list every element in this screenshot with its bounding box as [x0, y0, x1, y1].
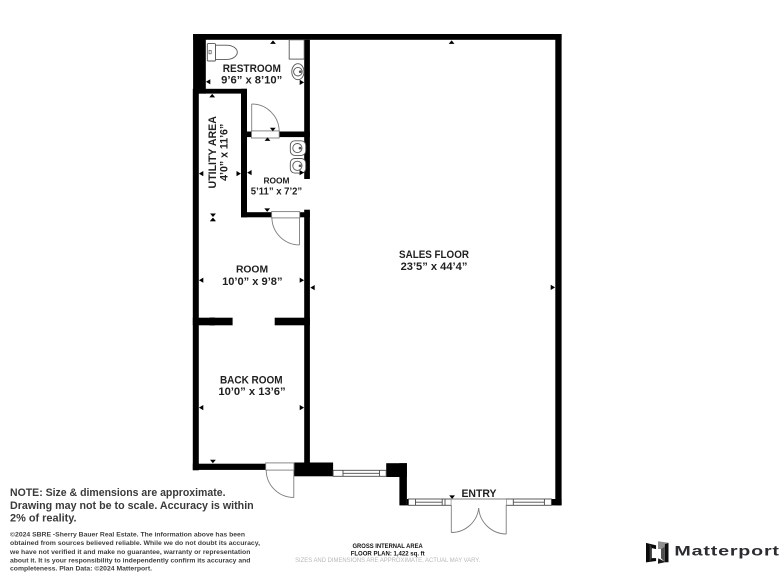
svg-text:Drawing may not be to scale. A: Drawing may not be to scale. Accuracy is… [10, 500, 254, 512]
svg-text:about it. It is your responsib: about it. It is your responsibility to i… [10, 557, 250, 564]
svg-text:we have not verified it and ma: we have not verified it and make no guar… [9, 549, 250, 556]
svg-text:Matterport: Matterport [674, 544, 779, 559]
svg-text:GROSS INTERNAL AREA: GROSS INTERNAL AREA [353, 543, 423, 550]
svg-text:SALES FLOOR: SALES FLOOR [399, 249, 469, 261]
svg-text:9’6” x 8’10”: 9’6” x 8’10” [221, 75, 282, 87]
svg-text:UTILITY AREA: UTILITY AREA [207, 116, 219, 188]
svg-text:5’11” x 7’2”: 5’11” x 7’2” [251, 187, 302, 198]
svg-text:NOTE: Size & dimensions are ap: NOTE: Size & dimensions are approximate. [10, 487, 226, 499]
svg-text:ENTRY: ENTRY [461, 488, 497, 500]
svg-text:23’5” x 44’4”: 23’5” x 44’4” [401, 261, 468, 273]
svg-text:completeness. Plan Data: ©2024: completeness. Plan Data: ©2024 Matterpor… [10, 565, 152, 573]
svg-text:2% of reality.: 2% of reality. [10, 513, 77, 525]
svg-text:RESTROOM: RESTROOM [223, 63, 281, 75]
svg-text:BACK ROOM: BACK ROOM [220, 374, 283, 386]
svg-text:SIZES AND DIMENSIONS ARE APPRO: SIZES AND DIMENSIONS ARE APPROXIMATE, AC… [295, 557, 480, 564]
svg-text:obtained from sources believed: obtained from sources believed reliable.… [10, 540, 260, 547]
svg-text:4’0” x 11’6”: 4’0” x 11’6” [218, 124, 230, 181]
svg-text:ROOM: ROOM [236, 265, 268, 276]
svg-text:10’0” x 9’8”: 10’0” x 9’8” [222, 276, 282, 288]
svg-text:ROOM: ROOM [263, 176, 289, 186]
svg-text:10’0” x 13’6”: 10’0” x 13’6” [218, 386, 285, 398]
svg-text:©2024 SBRE -Sherry Bauer Real: ©2024 SBRE -Sherry Bauer Real Estate. Th… [10, 531, 245, 539]
